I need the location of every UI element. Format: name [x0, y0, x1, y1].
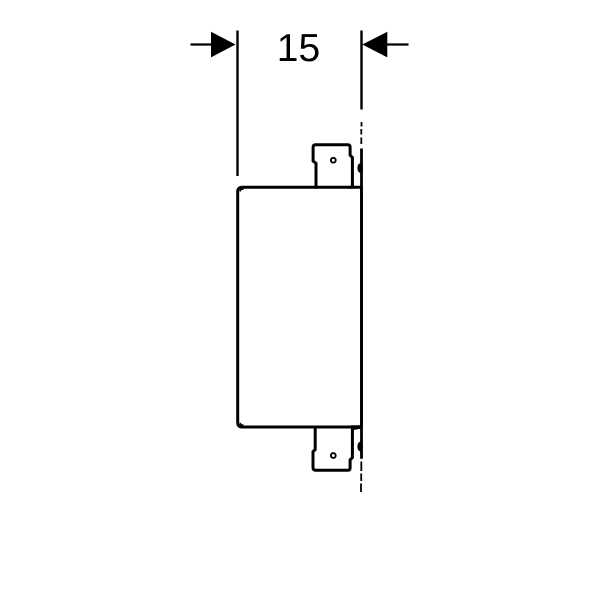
svg-text:15: 15	[277, 27, 320, 70]
